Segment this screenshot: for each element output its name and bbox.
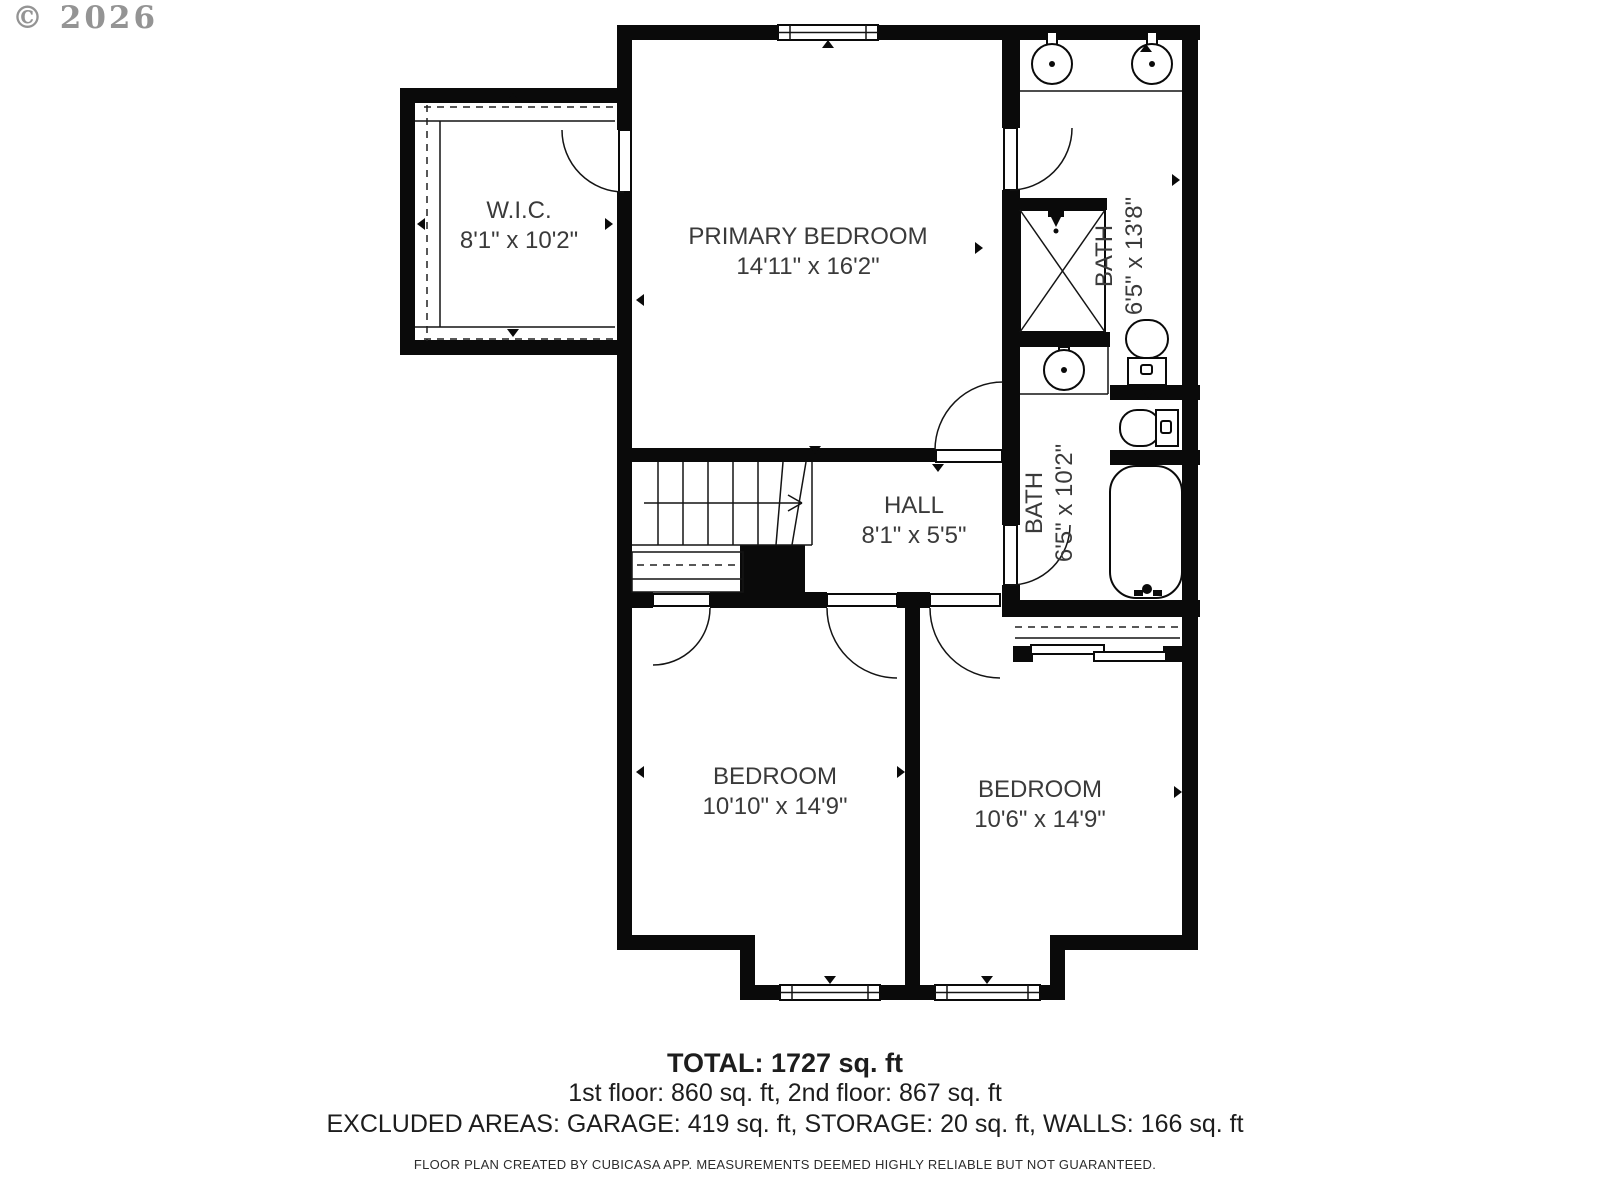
room-dims: 8'1" x 10'2" <box>460 226 578 256</box>
door-bath-upper <box>1004 128 1072 190</box>
door-primary-bedroom <box>935 382 1003 462</box>
room-name: BEDROOM <box>703 762 848 792</box>
room-dims: 8'1" x 5'5" <box>862 521 967 551</box>
door-bedroom-right <box>930 594 1000 678</box>
stairs-direction-arrow <box>644 495 802 511</box>
room-label-primary-bedroom: PRIMARY BEDROOM 14'11" x 16'2" <box>688 222 927 282</box>
bedroom-closet-sliding-doors <box>1015 627 1180 661</box>
room-label-wic: W.I.C. 8'1" x 10'2" <box>460 196 578 256</box>
toilet-icon <box>1126 320 1168 385</box>
room-name: PRIMARY BEDROOM <box>688 222 927 252</box>
room-dims: 10'10" x 14'9" <box>703 792 848 822</box>
room-label-bath-lower: BATH 6'5" x 10'2" <box>1020 444 1080 562</box>
room-label-bath-upper: BATH 6'5" x 13'8" <box>1090 197 1150 315</box>
walls <box>400 25 1200 1000</box>
total-area: TOTAL: 1727 sq. ft <box>0 1048 1570 1078</box>
floor-plan-drawing <box>0 0 1600 1200</box>
window-bedroom-right <box>935 985 1040 1000</box>
area-summary: TOTAL: 1727 sq. ft 1st floor: 860 sq. ft… <box>0 1048 1570 1172</box>
bathtub-icon <box>1110 466 1182 598</box>
window-bedroom-left <box>780 985 880 1000</box>
floor-areas: 1st floor: 860 sq. ft, 2nd floor: 867 sq… <box>0 1078 1570 1109</box>
room-name: BATH <box>1020 444 1050 562</box>
toilet-icon <box>1120 410 1178 446</box>
room-label-bedroom-right: BEDROOM 10'6" x 14'9" <box>974 775 1106 835</box>
door-wic <box>562 130 631 192</box>
sink-icon <box>1044 347 1084 390</box>
room-dims: 6'5" x 13'8" <box>1120 197 1150 315</box>
room-dims: 14'11" x 16'2" <box>688 252 927 282</box>
room-dims: 10'6" x 14'9" <box>974 805 1106 835</box>
room-label-bedroom-left: BEDROOM 10'10" x 14'9" <box>703 762 848 822</box>
door-understair-closet <box>653 594 710 665</box>
room-dims: 6'5" x 10'2" <box>1050 444 1080 562</box>
excluded-areas: EXCLUDED AREAS: GARAGE: 419 sq. ft, STOR… <box>0 1109 1570 1140</box>
room-name: W.I.C. <box>460 196 578 226</box>
room-name: HALL <box>862 491 967 521</box>
stairs <box>632 462 812 545</box>
understair-closet <box>632 552 743 592</box>
room-label-hall: HALL 8'1" x 5'5" <box>862 491 967 551</box>
room-name: BATH <box>1090 197 1120 315</box>
room-name: BEDROOM <box>974 775 1106 805</box>
door-bedroom-left <box>827 594 897 678</box>
floor-plan-page: { "copyright": "© 2026", "rooms": { "wic… <box>0 0 1600 1200</box>
window-top <box>778 25 878 40</box>
disclaimer-text: FLOOR PLAN CREATED BY CUBICASA APP. MEAS… <box>0 1157 1570 1172</box>
